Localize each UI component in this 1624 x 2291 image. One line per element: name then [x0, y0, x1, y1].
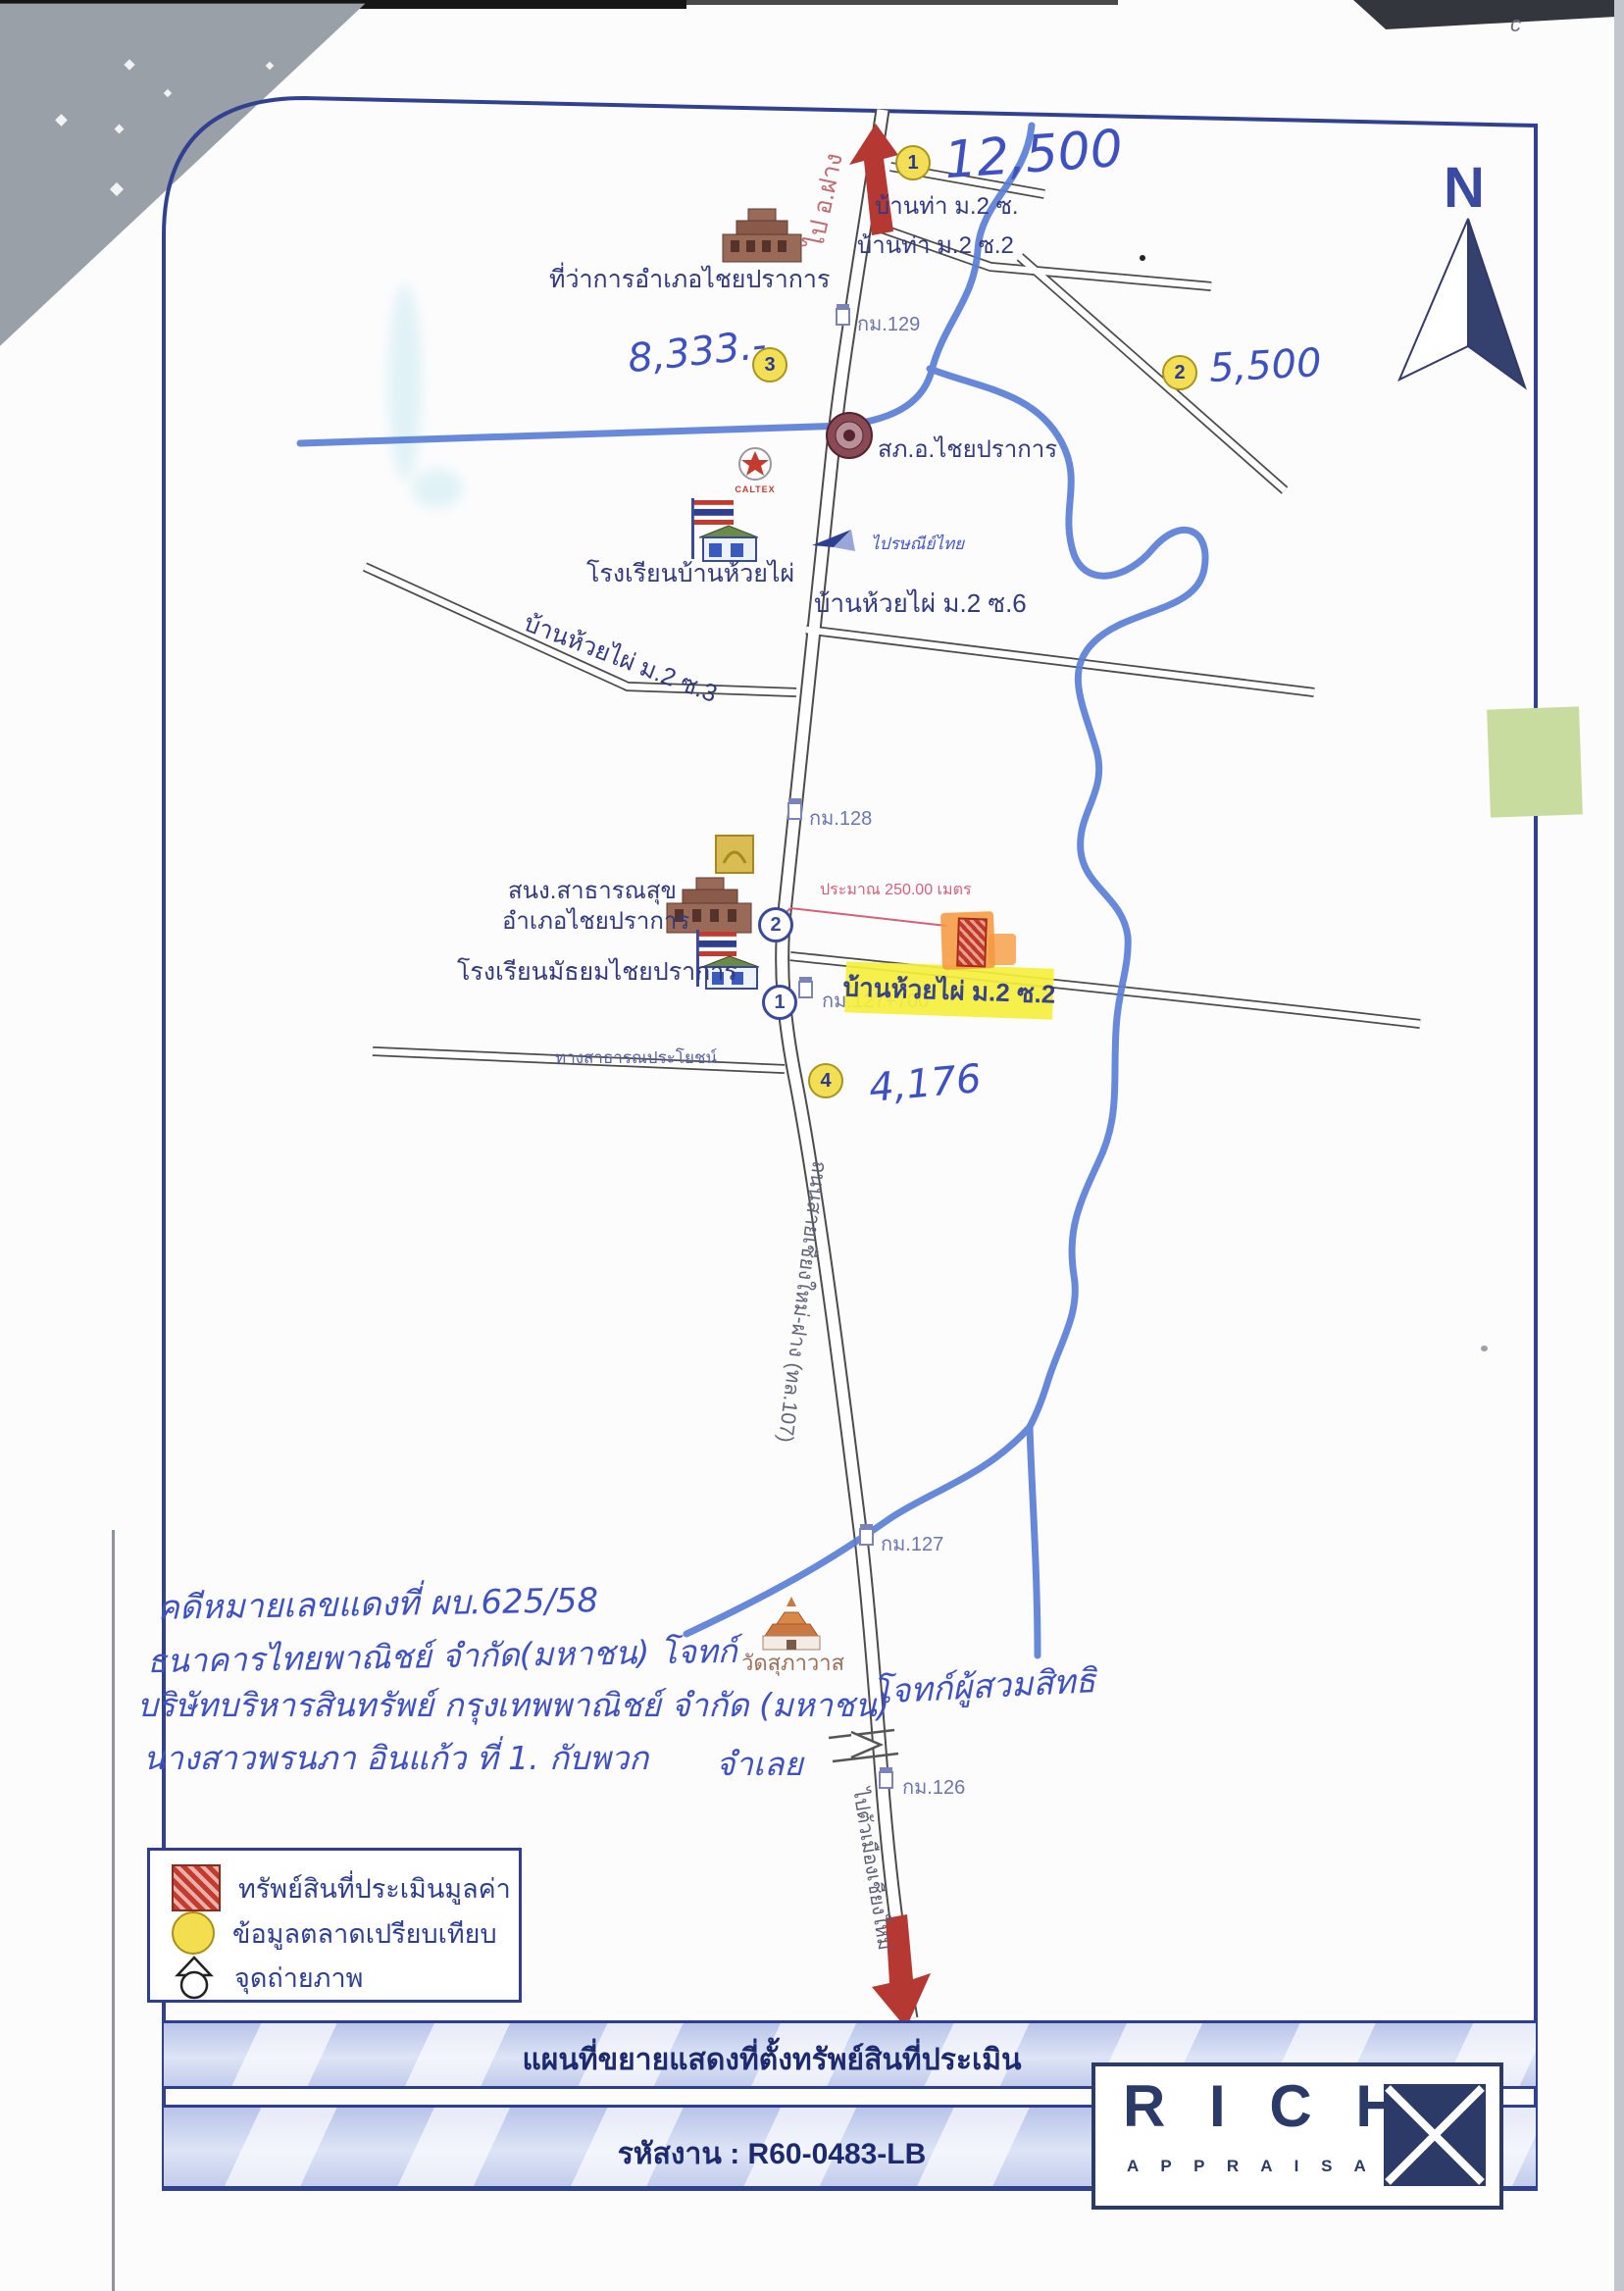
school-banhuaiphai-label: โรงเรียนบ้านห้วยไผ่	[586, 561, 794, 586]
market-marker-1: 1	[895, 145, 931, 180]
public-road-label: ทางสาธารณประโยชน์	[555, 1049, 717, 1067]
road-bantha-soi1-label: บ้านท่า ม.2 ซ.	[875, 194, 1019, 219]
handwritten-case-line1: คดีหมายเลขแดงที่ ผบ.625/58	[157, 1573, 599, 1634]
km129-label: กม.129	[857, 308, 920, 339]
km128-label: กม.128	[809, 802, 872, 834]
rich-appraisal-logo: R I C H A P P R A I S A L	[1091, 2062, 1503, 2210]
police-badge-icon	[824, 410, 875, 466]
temple-label: วัดสุภาวาส	[741, 1652, 844, 1674]
property-orange-highlight	[989, 934, 1016, 965]
km-sign-icon	[857, 1522, 877, 1553]
caltex-label: CALTEX	[734, 484, 777, 494]
health-office-label-line2: อำเภอไชยปราการ	[502, 909, 689, 934]
property-subject-rect	[956, 917, 988, 967]
km126-label: กม.126	[902, 1771, 965, 1803]
district-office-label: ที่ว่าการอำเภอไชยปราการ	[549, 267, 830, 292]
scanned-appraisal-map-page: ϲ	[0, 0, 1624, 2291]
handwritten-case-line2: ธนาคารไทยพาณิชย์ จำกัด(มหาชน) โจทก์	[147, 1625, 738, 1687]
handwritten-value-1: 12,500	[942, 120, 1125, 191]
job-code: รหัสงาน : R60-0483-LB	[340, 2131, 1203, 2177]
gold-landmark-icon	[714, 834, 755, 880]
highlighted-road-label: บ้านห้วยไผ่ ม.2 ซ.2	[844, 961, 1054, 1019]
thailand-post-logo-icon	[812, 528, 869, 558]
km-sign-icon	[877, 1765, 896, 1796]
photo-point-icon	[172, 1955, 217, 2000]
handwritten-case-line3: บริษัทบริหารสินทรัพย์ กรุงเทพพาณิชย์ จำก…	[137, 1679, 889, 1731]
district-office-icon	[717, 207, 807, 269]
km-sign-icon	[796, 975, 816, 1005]
legend-property-label: ทรัพย์สินที่ประเมินมูลค่า	[238, 1867, 511, 1909]
km-sign-icon	[834, 302, 853, 332]
market-marker-4: 4	[808, 1063, 843, 1098]
health-office-label-line1: สนง.สาธารณสุข	[508, 879, 677, 903]
market-circle-icon	[172, 1911, 215, 1955]
green-sticky-note	[1487, 706, 1583, 817]
distance-note-label: ประมาณ 250.00 เมตร	[820, 883, 972, 899]
km127-label: กม.127	[881, 1528, 943, 1559]
handwritten-value-2: 5,500	[1208, 340, 1323, 391]
property-swatch-icon	[172, 1864, 221, 1911]
photo-point-2: 2	[758, 907, 793, 942]
km-sign-icon	[786, 796, 805, 827]
compass-needle	[1399, 219, 1525, 387]
handwritten-case-line5: จำเลย	[716, 1738, 803, 1790]
legend-market-label: ข้อมูลตลาดเปรียบเทียบ	[232, 1912, 497, 1955]
rich-logo-word: R I C H	[1123, 2072, 1412, 2140]
rich-logo-x-icon	[1384, 2084, 1486, 2186]
police-station-label: สภ.อ.ไชยปราการ	[878, 437, 1057, 462]
road-huaiphai-soi2-label: บ้านห้วยไผ่ ม.2 ซ.2	[842, 967, 1056, 1015]
legend-photo-label: จุดถ่ายภาพ	[234, 1957, 363, 1999]
handwritten-case-line4: นางสาวพรนภา อินแก้ว ที่ 1. กับพวก	[143, 1732, 648, 1784]
compass-north-label: N	[1444, 155, 1485, 221]
school-mathayom-label: โรงเรียนมัธยมไชยปราการ	[457, 959, 737, 985]
thailand-post-label: ไปรษณีย์ไทย	[871, 535, 964, 553]
temple-icon	[749, 1597, 834, 1658]
legend-box: ทรัพย์สินที่ประเมินมูลค่า ข้อมูลตลาดเปรี…	[147, 1848, 522, 2003]
map-title: แผนที่ขยายแสดงที่ตั้งทรัพย์สินที่ประเมิน	[340, 2037, 1203, 2083]
legend-row-photo: จุดถ่ายภาพ	[172, 1955, 363, 2000]
road-huaiphai-soi6-label: บ้านห้วยไผ่ ม.2 ซ.6	[814, 590, 1027, 617]
caltex-icon: CALTEX	[734, 446, 777, 494]
legend-row-property: ทรัพย์สินที่ประเมินมูลค่า	[172, 1864, 511, 1911]
legend-row-market: ข้อมูลตลาดเปรียบเทียบ	[172, 1911, 497, 1955]
photo-point-1: 1	[762, 985, 797, 1020]
rich-logo-subtitle: A P P R A I S A L	[1127, 2157, 1406, 2176]
market-marker-2: 2	[1162, 355, 1197, 390]
road-bantha-soi2-label: บ้านท่า ม.2 ซ.2	[857, 233, 1014, 258]
